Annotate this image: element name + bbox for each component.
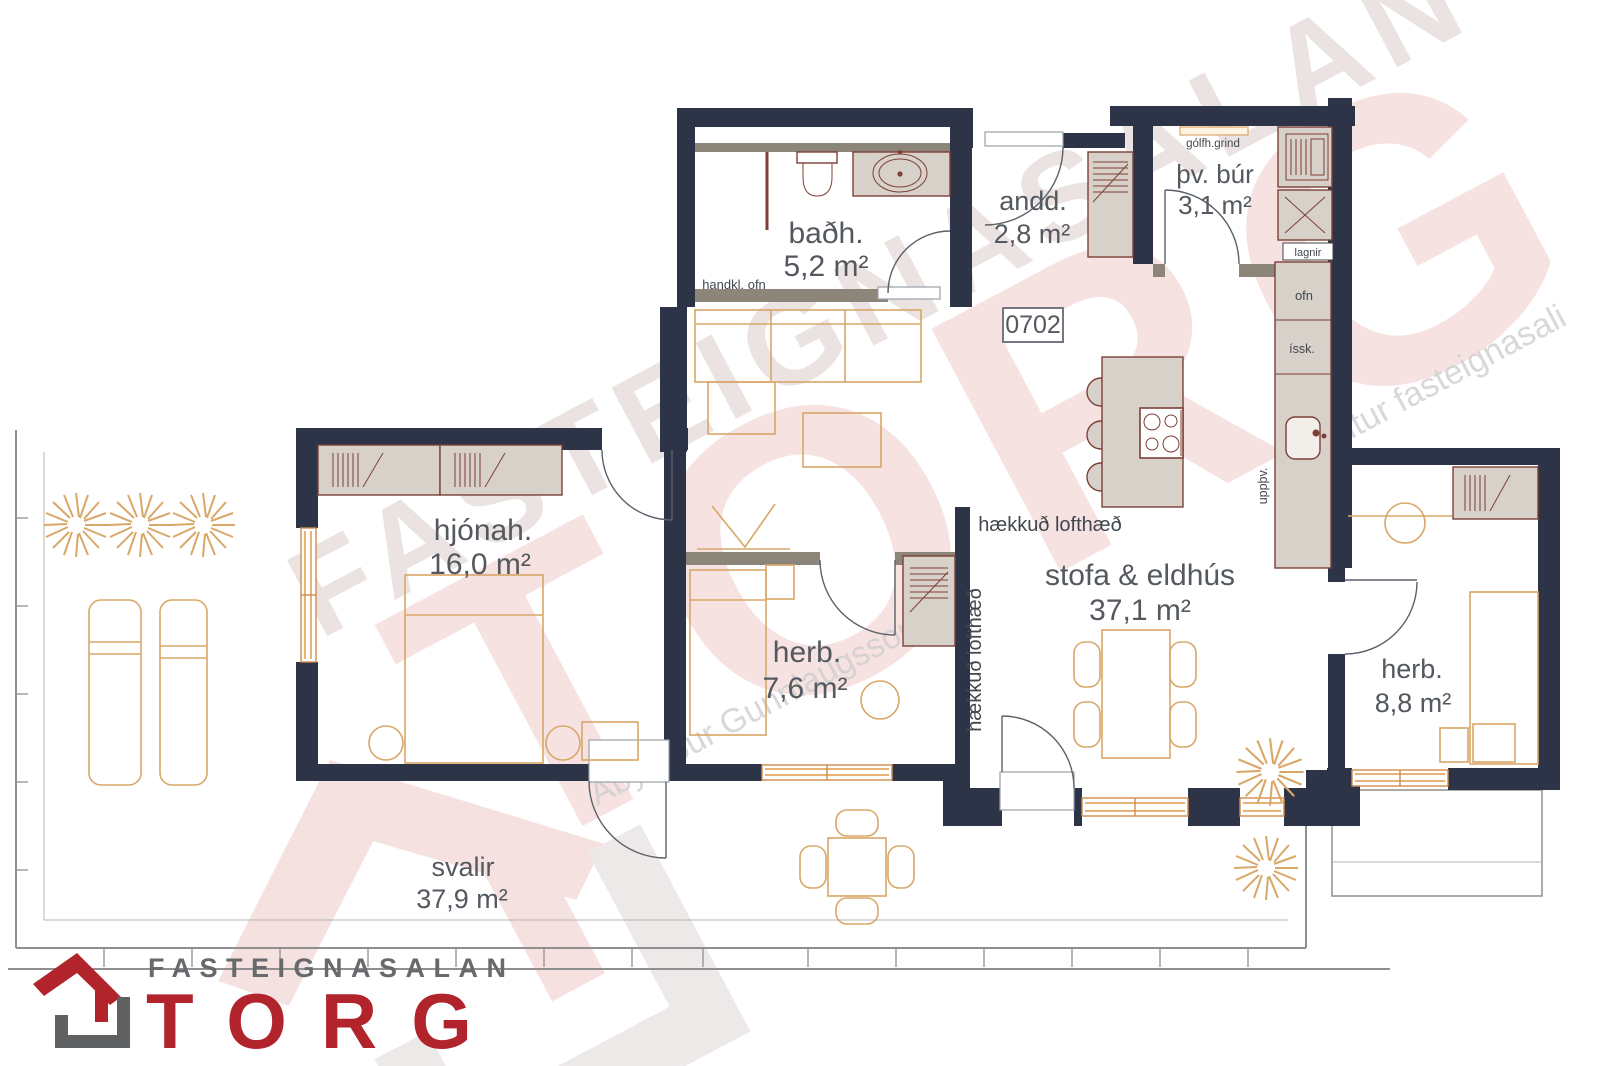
label-laundry-area: 3,1 m² <box>1178 190 1252 220</box>
label-balcony-name: svalir <box>431 852 494 882</box>
kitchen-sink <box>1286 417 1320 459</box>
label-dishwasher: uppþv. <box>1256 468 1270 505</box>
plant-icon <box>1236 738 1303 805</box>
window-bedroom-right <box>1352 770 1448 786</box>
living-balcony-door <box>1000 716 1074 810</box>
label-master-name: hjónah. <box>434 514 532 547</box>
label-balcony-area: 37,9 m² <box>416 884 508 914</box>
dryer-box <box>1278 190 1332 240</box>
plant-icon <box>108 493 172 557</box>
label-bathroom-area: 5,2 m² <box>783 250 868 283</box>
window-living-2 <box>1240 798 1284 816</box>
plant-icon <box>1234 836 1298 900</box>
logo-house-icon <box>33 953 130 1048</box>
label-bedroom-small-name: herb. <box>773 636 841 669</box>
window-master-bedroom <box>301 528 316 662</box>
label-oven: ofn <box>1295 288 1313 303</box>
cabinet-bedroom-small <box>903 556 955 646</box>
floorplan-drawing: TORG FASTEIGNASALAN Ábyrgður Gunnlaugsso… <box>0 0 1600 1066</box>
kitchen-counter <box>1275 262 1331 568</box>
plant-icon <box>44 493 108 557</box>
kitchen-island <box>1087 357 1183 507</box>
wardrobe-master-1 <box>318 445 440 495</box>
sun-loungers <box>89 600 207 785</box>
label-fridge: íssk. <box>1289 342 1315 356</box>
closet-entrance <box>1088 152 1133 257</box>
small-balcony-right <box>1332 790 1542 896</box>
bedroom-right-door <box>1345 580 1417 654</box>
balcony-dining-set <box>800 810 914 924</box>
label-living-area: 37,1 m² <box>1089 594 1191 627</box>
label-raised-ceiling-v: hækkuð lofthæð <box>964 588 986 731</box>
unit-number-box: 0702 <box>1003 308 1063 342</box>
label-bedroom-small-area: 7,6 m² <box>762 672 847 705</box>
bedroom-right-furniture <box>1348 503 1538 764</box>
label-laundry-name: þv. búr <box>1176 159 1254 189</box>
bathroom-vanity <box>853 152 950 196</box>
label-bedroom-right-area: 8,8 m² <box>1375 688 1452 718</box>
window-living-1 <box>1082 798 1188 816</box>
floor-heating-shelf <box>1180 127 1248 135</box>
label-raised-ceiling-h: hækkuð lofthæð <box>978 514 1121 536</box>
label-pipes: lagnir <box>1295 247 1322 259</box>
label-floor-heating: gólfh.grind <box>1186 138 1240 150</box>
label-living-name: stofa & eldhús <box>1045 559 1235 592</box>
wardrobe-bedroom-right <box>1453 467 1538 519</box>
label-towel-radiator: handkl. ofn <box>702 277 766 292</box>
plant-icon <box>171 493 235 557</box>
cooktop <box>1140 408 1183 458</box>
washing-machine <box>1278 127 1332 187</box>
toilet <box>797 152 837 196</box>
window-bedroom-small <box>762 765 892 780</box>
floorplan-canvas: TORG FASTEIGNASALAN Ábyrgður Gunnlaugsso… <box>0 0 1600 1066</box>
label-entrance-area: 2,8 m² <box>994 219 1071 249</box>
label-bathroom-name: baðh. <box>788 217 863 250</box>
logo-brand-text: TORG <box>146 977 506 1065</box>
wardrobe-master-2 <box>440 445 562 495</box>
unit-number: 0702 <box>1005 311 1061 339</box>
label-master-area: 16,0 m² <box>429 548 531 581</box>
label-bedroom-right-name: herb. <box>1381 654 1443 684</box>
label-entrance-name: andd. <box>999 186 1067 216</box>
